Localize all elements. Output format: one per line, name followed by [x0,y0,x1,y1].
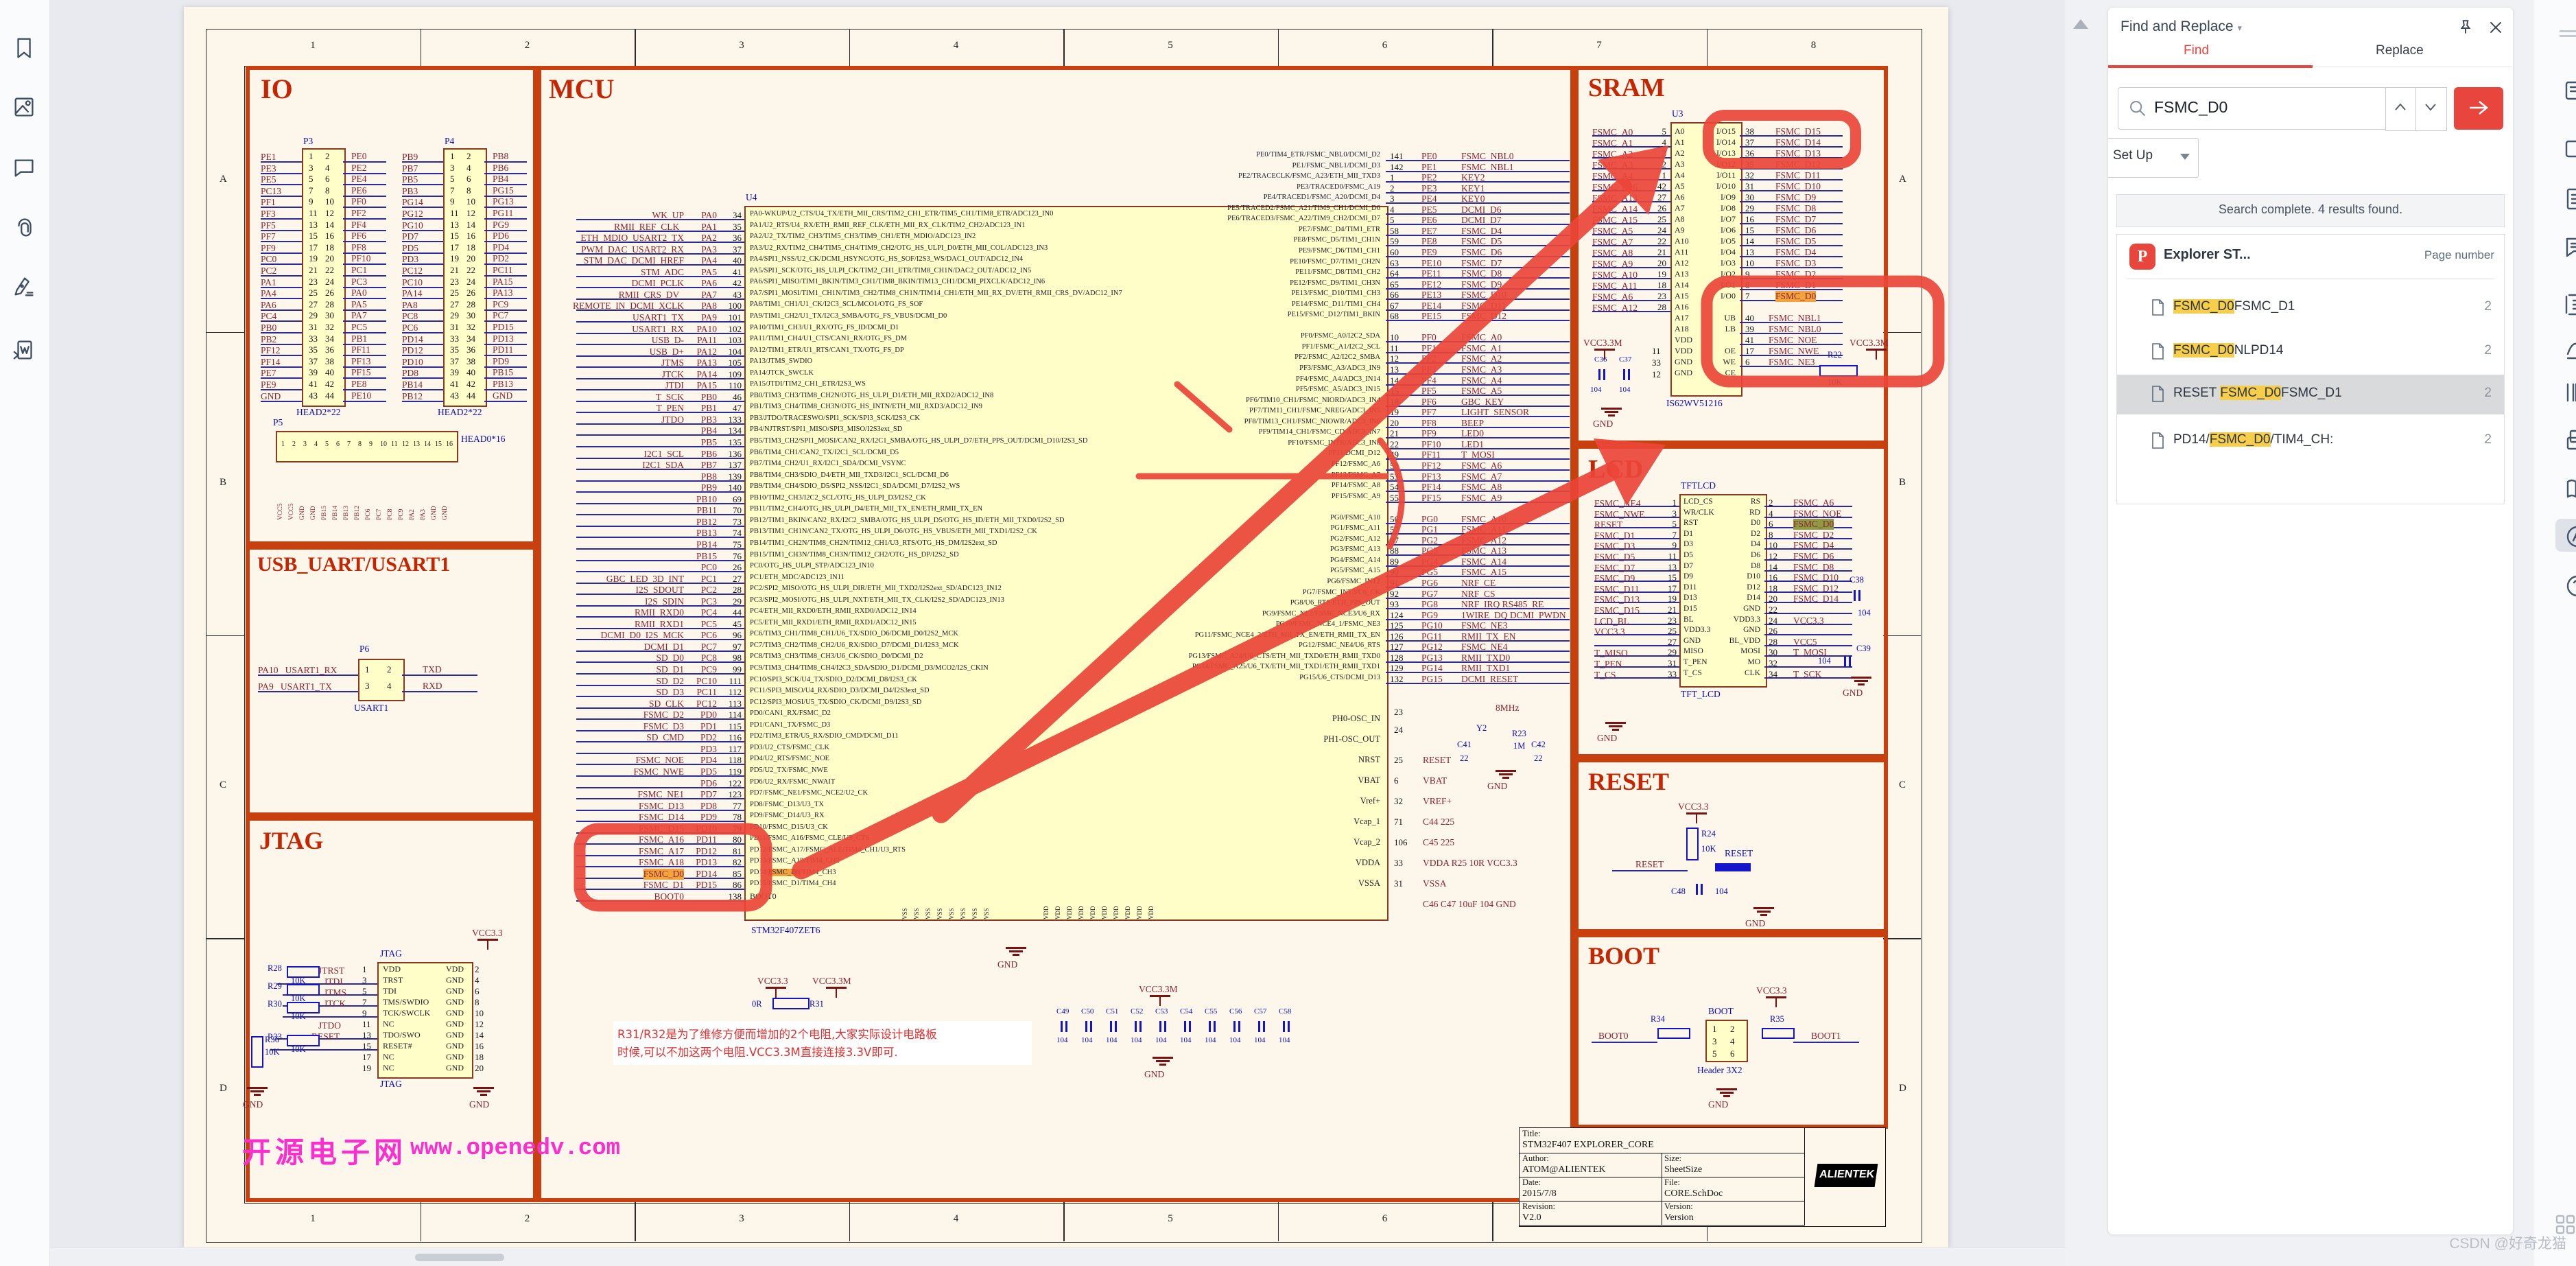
pin-function: PB10/TIM2_CH3/I2C2_SCL/OTG_HS_ULPI_D3/I2… [750,494,926,502]
vss-label: VSS [936,908,943,919]
power-label: GND [997,959,1017,970]
chat-icon[interactable] [2564,233,2576,261]
search-result-row[interactable]: FSMC_D0FSMC_D12 [2117,288,2504,328]
net-row: 41PA5STM_ADC [576,267,744,277]
pin-function: Vcap_1 [1354,817,1380,827]
close-icon[interactable] [2487,19,2505,36]
net-row: GND [261,390,302,402]
net-row: PE6 [343,185,386,197]
row-label: B [1899,477,1906,489]
net-row: 65PE12FSMC_D9 [1386,279,1570,290]
net-row: 80PD11FSMC_A16 [576,834,744,845]
pin-number: 6 [1730,1048,1735,1059]
outline-icon[interactable] [2564,291,2576,318]
vdd-label: VDD [1148,906,1155,920]
net-row: PC1 [343,265,386,277]
file-icon [2151,343,2164,360]
vss-label: VSS [913,908,920,919]
pin-function: PG3/FSMC_A13 [1330,546,1380,553]
pin-number: 5 [325,441,329,448]
pin-number: 11 [450,208,459,219]
pin-function: D9 [1683,572,1693,581]
pin-number: 25 [450,288,459,298]
net-row: 7FSMC_D0 [1740,291,1843,301]
wire [1883,938,1921,939]
resistor-ref: R28 [268,963,282,974]
capacitor-value: 104 [1131,1036,1142,1044]
pin-number: 12 [1652,369,1661,380]
pin-function: PB12/TIM1_BKIN/CAN2_RX/I2C2_SMBA/OTG_HS_… [750,517,1065,524]
pin-function: I/O4 [1721,247,1736,257]
pin-number: 1 [309,151,314,162]
pin-number: 30 [325,310,334,321]
pin-number: 38 [466,356,475,367]
pin-function: D7 [1683,562,1693,570]
pin-number: 16 [446,441,453,448]
column-label: 7 [1596,40,1602,51]
resistor-value: 10K [1828,377,1843,388]
capacitor-symbol [1065,1021,1067,1032]
pin-function: PE14/FSMC_D11/TIM1_CH4 [1292,301,1380,308]
component-ref: P3 [303,136,313,147]
net-label: JTCK [324,998,346,1009]
pin-function: PD8/FSMC_D13/U3_TX [750,801,824,808]
pin-function: PG0/FSMC_A10 [1330,514,1380,521]
net-row: 2PE3KEY1 [1386,183,1570,194]
pin-function: PA5/SPI1_SCK/OTG_HS_ULPI_CK/TIM2_CH1_ETR… [750,267,1031,274]
pin-number: 24 [325,277,334,288]
pin-function: T_PEN [1683,658,1708,666]
column-label: 4 [954,1213,959,1225]
date-label: Date:2015/7/8 [1520,1177,1662,1201]
net-row: FSMC_A1118 [1592,280,1670,290]
capacitor-value: 104 [1590,386,1602,394]
pin-number: 37 [309,356,318,367]
net-row: 45PC5RMII_RXD1 [576,619,744,629]
horizontal-scrollbar-thumb[interactable] [415,1254,504,1261]
section-title-reset: RESET [1588,767,1669,796]
pin-icon[interactable] [2457,19,2474,36]
wire [849,1202,851,1241]
pin-number: 13 [450,220,459,231]
capacitor-value: 104 [1619,386,1631,394]
date-value: 2015/7/8 [1522,1188,1557,1199]
net-row: 53PF13FSMC_A7 [1386,471,1570,482]
search-scope-dropdown[interactable]: Set Up [2107,138,2199,178]
power-label: VCC3.3M [1850,338,1889,349]
net-row: PA1 [261,277,302,288]
result-count: 2 [2484,299,2492,314]
net-label: VREF+ [1423,796,1452,807]
pin-function: PF6/TIM10_CH1/FSMC_NIORD/ADC3_IN4 [1246,397,1380,404]
wire [775,987,777,998]
capacitor-value: 104 [1056,1036,1068,1044]
pin-function: PG1/FSMC_A11 [1330,524,1380,532]
edit-icon[interactable] [2564,134,2576,162]
net-row: 124PG91WIRE_DQ DCMI_PWDN [1386,610,1570,620]
net-row: FSMC_A1426 [1592,203,1670,213]
net-row: 39FSMC_NBL0 [1740,324,1843,334]
resistor-symbol [1819,365,1858,377]
page-icon[interactable] [2564,185,2576,213]
pin-function: GND [446,1030,464,1040]
pin-function: VDD [383,964,401,974]
find-and-replace-panel: Find and Replace ▾ Find Replace FSMC_D0 … [2107,7,2514,1235]
net-row: PD3 [402,253,443,265]
pin-number: 41 [450,379,459,390]
net-row: RESET5 [1594,519,1679,528]
net-row: 14FSMC_D8 [1764,562,1852,572]
vdd-label: VDD [1043,906,1050,920]
pin-number: 35 [450,344,459,355]
pin-function: A9 [1675,225,1685,235]
rotated-pin-label: GND [299,506,306,520]
pin-number: 28 [325,299,334,310]
read-aloud-icon[interactable] [2564,523,2576,550]
net-row: 79PD10FSMC_D15 [576,823,744,834]
signature-icon[interactable] [2564,335,2576,362]
left-sidebar-toolbar [0,0,50,1266]
pin-function: PE9/FSMC_D6/TIM1_CH1 [1299,247,1380,255]
net-row: 109PA14JTCK [576,369,744,379]
net-row: 18PF6GBC_KEY [1386,397,1570,407]
pin-function: PG4/FSMC_A14 [1330,556,1380,564]
pin-number: 18 [325,242,334,253]
pin-number: 44 [466,390,475,401]
capacitor-symbol [1214,1021,1216,1032]
power-label: VCC3.3 [757,976,788,987]
net-row: 34T_SCK [1764,669,1852,679]
net-row: PE0 [343,151,386,163]
pin-function: PF0/FSMC_A0/I2C2_SDA [1301,332,1380,340]
capacitor-symbol [1598,369,1600,380]
pin-number: 26 [325,288,334,298]
pin-function: A5 [1675,181,1685,191]
result-text: RESET FSMC_D0FSMC_D1 [2173,386,2342,401]
net-row: 14FSMC_D5 [1740,236,1843,246]
net-row: PE5 [261,174,302,185]
pin-function: PG7/FSMC_INT3/U6_CK [1303,589,1380,596]
component-name: JTAG [380,1079,402,1090]
net-label: JTMS [324,987,346,998]
pin-function: GND [446,975,464,985]
pin-number: 10 [380,441,387,448]
net-row: PE4 [343,174,386,185]
net-row: 89PG4FSMC_A14 [1386,556,1570,567]
pin-number: 15 [309,231,318,242]
net-row: 119PD5FSMC_NWE [576,766,744,777]
net-row: 99PC9SD_D1 [576,664,744,675]
pin-function: BL_VDD [1729,637,1760,645]
author-label: Author:ATOM@ALIENTEK [1520,1153,1662,1177]
capacitor-ref: C55 [1205,1007,1217,1016]
pin-function: PA6/SPI1_MISO/TIM1_BKIN/TIM3_CH1/TIM8_BK… [750,278,1045,285]
pin-number: 20 [466,253,475,264]
net-row: PF0 [343,196,386,208]
net-row: T_PEN31 [1594,658,1679,668]
net-row: 27 [1594,637,1679,646]
vdd-label: VDD [1066,906,1073,920]
pin-function: TRST [383,975,403,985]
column-label: 6 [1382,40,1388,51]
net-row: 92PG7NRF_CS [1386,589,1570,599]
capacitor-ref: C52 [1131,1007,1143,1016]
pin-number: 10 [466,196,475,207]
pin-number: 14 [325,220,334,231]
component-ref: P6 [359,644,369,655]
bookmark-icon[interactable] [12,36,38,62]
rotated-pin-label: PC7 [376,509,383,520]
comment-icon[interactable] [12,155,38,181]
net-row: TXD [402,664,477,676]
net-row: 114PD0FSMC_D2 [576,710,744,720]
net-row: 134PB4 [576,425,744,436]
pin-number: 38 [325,356,334,367]
pin-number: 11 [362,1019,371,1030]
column-label: 8 [1811,40,1817,51]
pin-function: GND [1743,626,1760,634]
pin-number: 31 [450,322,459,333]
vdd-label: VDD [1136,906,1143,920]
net-label: JTDI [324,976,343,987]
note-icon[interactable] [2564,77,2576,104]
net-row: PC9 [484,299,527,311]
net-row: PE9 [261,379,302,390]
net-row: FSMC_A1327 [1592,192,1670,202]
net-row: PA15 [484,277,527,288]
resistor-symbol [251,1036,263,1068]
red-note-line2: 时候,可以不加这两个电阻.VCC3.3M直接连接3.3V即可. [617,1043,898,1059]
pin-function: BOOT0 [750,891,777,902]
net-row: 126PG11RMII_TX_EN [1386,631,1570,642]
pin-number: 2 [466,151,471,162]
component-ref: U4 [746,192,757,203]
net-row: PG14 [402,196,443,208]
pin-number: 5 [1712,1048,1717,1059]
right-panel-region: Find and Replace ▾ Find Replace FSMC_D0 … [2065,0,2576,1266]
net-row: PD8 [402,367,443,379]
rotated-pin-label: VCC5 [277,504,284,520]
section-title-jtag: JTAG [259,826,323,855]
net-row: PB15 [484,367,527,379]
wire [421,1202,422,1241]
export-word-icon[interactable] [12,338,38,364]
pin-function: TCK/SWCLK [383,1008,430,1018]
pin-function: PC8/TIM3_CH3/TIM8_CH3/U6_CK/SDIO_D0/DCMI… [750,653,923,660]
book-icon[interactable] [2564,475,2576,502]
revision-label: Revision:V2.0 [1520,1201,1662,1226]
tab-find[interactable]: Find [2184,43,2209,58]
net-row: 29PC3I2S_SDIN [576,596,744,607]
net-row: 136PB6I2C1_SCL [576,449,744,459]
wire [270,1049,377,1051]
inactive-tab-underline [2313,67,2513,67]
pin-function: GND [1743,605,1760,613]
pin-function: PD11/FSMC_A16/FSMC_CLE/U3_CTS [750,834,869,842]
net-row: FSMC_D511 [1594,551,1679,561]
power-label: VCC3.3M [1583,338,1622,349]
pin-function: PD6/U2_RX/FSMC_NWAIT [750,778,835,786]
pin-number: 8 [475,997,480,1008]
pin-function: A3 [1675,159,1685,169]
resistor-ref: R34 [1651,1014,1665,1024]
net-row: 78PD9FSMC_D14 [576,812,744,822]
pin-number: 27 [309,299,318,310]
pin-function: A16 [1675,302,1689,312]
pin-function: TDI [383,986,397,996]
row-label: D [1899,1083,1906,1094]
pin-number: 33 [450,333,459,344]
pin-function: GND [446,1052,464,1062]
pin-number: 23 [309,277,318,288]
gnd-symbol [472,1087,495,1098]
pin-function: RS [1751,497,1760,506]
net-row: PB14 [402,379,443,390]
net-row: 93PG8NRF_IRQ RS485_RE [1386,599,1570,609]
pin-number: 23 [1394,707,1403,718]
net-row: 4FSMC_NOE [1764,508,1852,518]
net-row: 70PB11 [576,505,744,515]
pin-function: D8 [1751,562,1760,570]
resistor-symbol [1762,1028,1795,1039]
wire [1696,812,1697,823]
net-row: PG12 [402,208,443,220]
pin-function: A11 [1675,247,1688,257]
panel-title-caret-icon[interactable]: ▾ [2237,23,2242,33]
net-row: LCD_BL23 [1594,616,1679,625]
pin-function: PD15/FSMC_D1/TIM4_CH4 [750,880,836,887]
attachment-icon[interactable] [12,214,38,240]
pin-function: VDD [1675,335,1692,345]
author-value: ATOM@ALIENTEK [1522,1164,1606,1175]
net-row: PB13 [484,379,527,390]
capacitor-ref: C37 [1619,355,1631,364]
pin-function: VBAT [1358,775,1380,786]
pin-function: I/O5 [1721,236,1736,246]
pin-function: PF11/DCMI_D12 [1329,449,1380,457]
capacitor-symbol [1288,1021,1290,1032]
net-row: 5PE6DCMI_D7 [1386,215,1570,225]
search-result-row[interactable]: RESET FSMC_D0FSMC_D12 [2117,375,2504,414]
scroll-up-arrow[interactable] [2073,19,2088,29]
capacitor-symbol [1858,590,1860,601]
capacitor-symbol [1110,1021,1112,1032]
find-next-button[interactable] [2415,87,2447,131]
net-row: PF10 [343,253,386,265]
resistor-ref: R29 [268,981,282,992]
net-row: PD12 [402,344,443,356]
pin-number: 32 [1394,796,1403,807]
chevron-down-icon [2180,154,2190,160]
vss-label: VSS [948,908,955,919]
pin-number: 24 [466,277,475,288]
net-row: PG15 [484,185,527,197]
net-row: 115PD1FSMC_D3 [576,721,744,731]
net-row: 140PB9 [576,482,744,493]
search-result-row[interactable]: PD14/FSMC_D0/TIM4_CH:2 [2117,421,2504,461]
net-row: FSMC_NE41 [1594,497,1679,507]
pin-function: GND [1675,357,1692,367]
pin-number: 39 [309,367,318,378]
pin-number: 9 [309,196,314,207]
pin-function: PC12/SPI3_MOSI/U5_TX/SDIO_CK/DCMI_D9/I2S… [750,699,921,706]
pin-function: PC11/SPI3_MISO/U4_RX/SDIO_D3/DCMI_D4/I2S… [750,687,930,694]
rotated-pin-label: PB15 [321,506,328,520]
pin-function: A18 [1675,324,1689,334]
net-row: 37FSMC_D14 [1740,137,1843,148]
net-row: 82PD13FSMC_A18 [576,857,744,867]
sign-icon[interactable] [12,273,38,299]
capacitor-symbol [1603,369,1605,380]
rotated-pin-label: PB13 [343,506,350,520]
resistor-ref: R30 [268,999,282,1009]
column-icon[interactable] [2564,379,2576,406]
pin-function: PF4/FSMC_A4/ADC3_IN14 [1296,375,1380,383]
pin-function: VDDA [1356,858,1380,868]
find-previous-button[interactable] [2385,87,2417,131]
pin-function: PA14/JTCK_SWCLK [750,369,814,377]
net-row: 110PA15JTDI [576,380,744,390]
pin-function: PG10/FSMC_NCE4_1/FSMC_NE3 [1276,620,1380,628]
net-row: PD10 [402,356,443,368]
net-row: FSMC_A41 [1592,170,1670,180]
document-name[interactable]: Explorer ST... [2164,247,2251,263]
stack-icon[interactable] [2564,427,2576,454]
pin-function: PH0-OSC_IN [1332,714,1380,724]
pin-number: 32 [325,322,334,333]
pin-number: 15 [450,231,459,242]
net-row: PD9 [484,356,527,368]
pin-number: 2 [292,441,296,448]
net-row: 57PG1FSMC_A11 [1386,524,1570,535]
pin-function: PD4/U2_RTS/FSMC_NOE [750,755,829,762]
net-row: GND [484,390,527,402]
net-row: FSMC_D915 [1594,572,1679,582]
search-input[interactable]: FSMC_D0 [2118,87,2387,130]
pin-number: 12 [402,441,409,448]
author-label: Author: [1522,1153,1549,1164]
column-label: 5 [1168,1213,1173,1225]
pin-function: A6 [1675,192,1685,202]
capacitor-ref: C50 [1081,1007,1094,1016]
pin-number: 8 [466,185,471,196]
tab-replace[interactable]: Replace [2376,43,2424,58]
section-title-sram: SRAM [1588,73,1665,103]
wire [1278,29,1279,66]
capacitor-ref: C53 [1155,1007,1168,1016]
image-icon[interactable] [12,95,38,121]
net-row: 32 [1764,658,1852,668]
help-icon[interactable] [2564,572,2576,600]
search-result-row[interactable]: FSMC_D0NLPD142 [2117,332,2504,372]
net-row: PF9 [261,242,302,254]
net-row: 8FSMC_D2 [1764,530,1852,539]
search-go-button[interactable] [2454,87,2503,130]
wire [635,29,636,66]
net-row: 35PA1RMII_REF_CLK [576,222,744,232]
net-row: 63PE10FSMC_D7 [1386,258,1570,268]
net-row: 58PE7FSMC_D4 [1386,226,1570,236]
net-row: 139PB8 [576,471,744,482]
net-row: 77PD8FSMC_D13 [576,801,744,811]
capacitor-symbol [1283,1021,1285,1032]
alientek-logo: ALIENTEK [1815,1164,1878,1187]
wire [421,29,422,66]
net-row: 28PC2I2S_SDOUT [576,585,744,595]
net-row: 54PF14FSMC_A8 [1386,482,1570,492]
pin-number: 10 [475,1008,484,1019]
drag-handle[interactable] [2560,30,2576,32]
